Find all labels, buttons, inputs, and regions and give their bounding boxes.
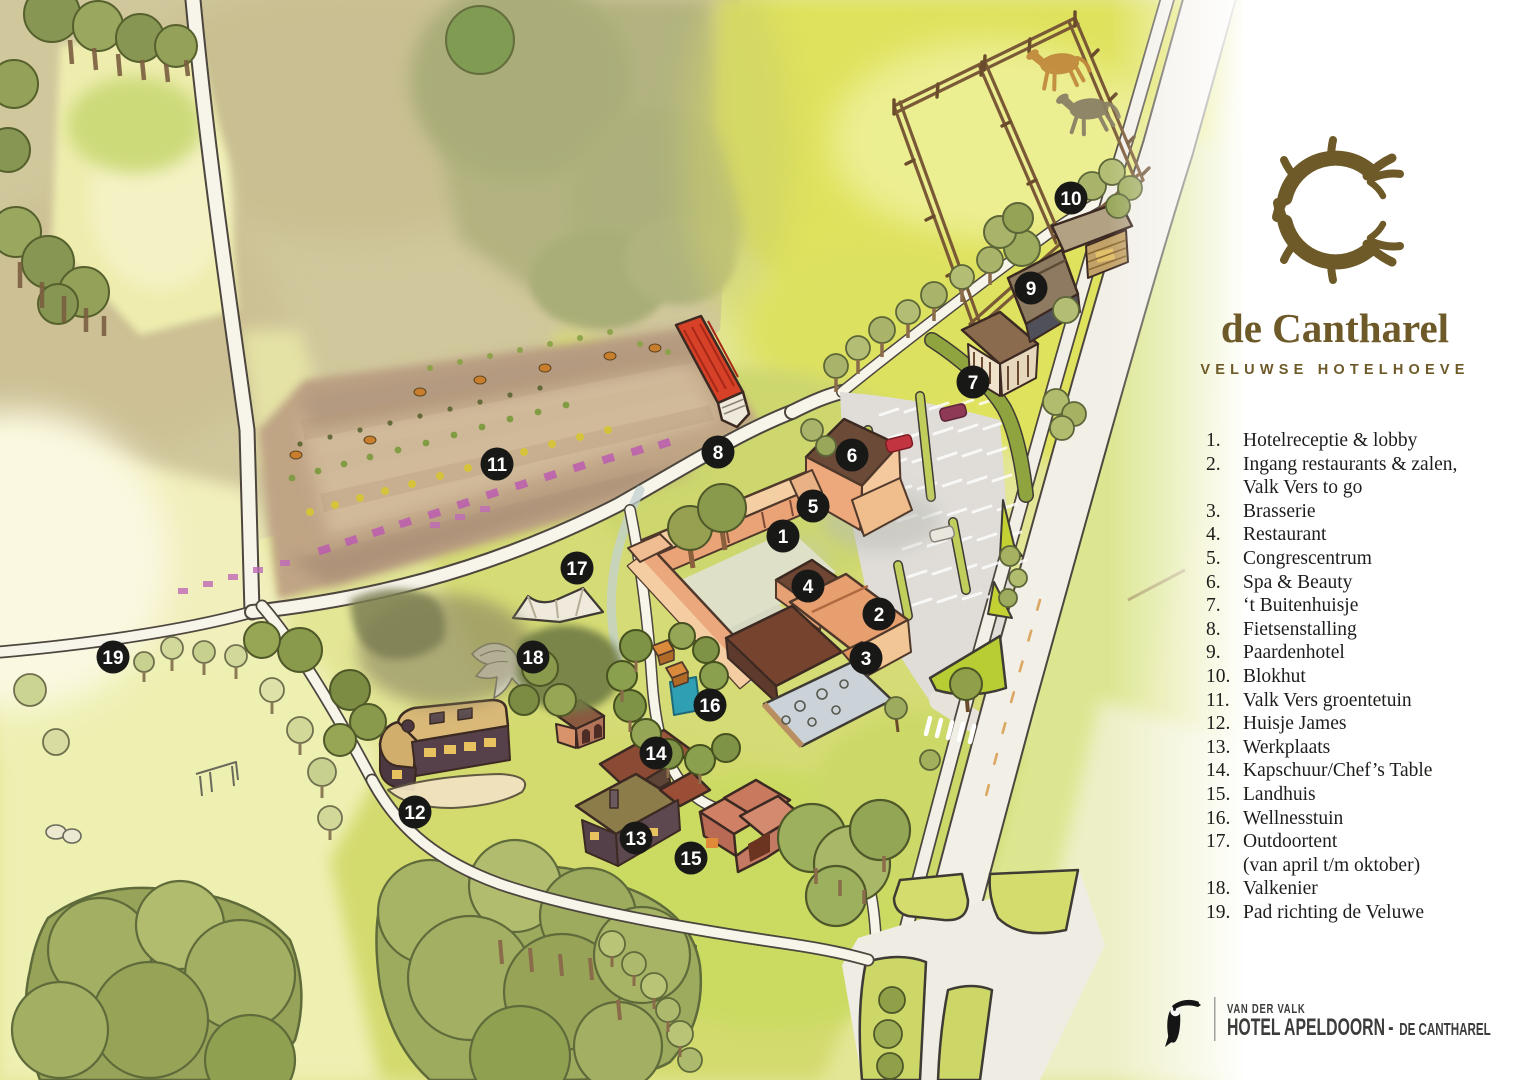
svg-text:4: 4 (803, 577, 814, 598)
svg-text:17: 17 (566, 559, 587, 580)
svg-text:7: 7 (968, 373, 979, 394)
svg-text:HOTEL APELDOORN: HOTEL APELDOORN (1227, 1014, 1385, 1041)
svg-text:19: 19 (102, 648, 123, 669)
svg-text:12: 12 (404, 803, 425, 824)
svg-text:1: 1 (778, 527, 789, 548)
svg-text:8: 8 (713, 443, 724, 464)
svg-text:11: 11 (487, 455, 508, 476)
svg-text:18: 18 (522, 648, 543, 669)
svg-text:5: 5 (808, 497, 819, 518)
svg-text:2: 2 (874, 605, 885, 626)
svg-text:14: 14 (645, 744, 667, 765)
svg-text:16: 16 (699, 696, 720, 717)
svg-text:-: - (1388, 1014, 1393, 1041)
svg-text:10: 10 (1060, 189, 1081, 210)
svg-text:DE CANTHAREL: DE CANTHAREL (1399, 1020, 1490, 1040)
svg-text:6: 6 (847, 446, 858, 467)
svg-text:3: 3 (861, 649, 872, 670)
svg-text:15: 15 (680, 849, 702, 870)
svg-text:13: 13 (625, 829, 646, 850)
svg-text:9: 9 (1026, 279, 1037, 300)
